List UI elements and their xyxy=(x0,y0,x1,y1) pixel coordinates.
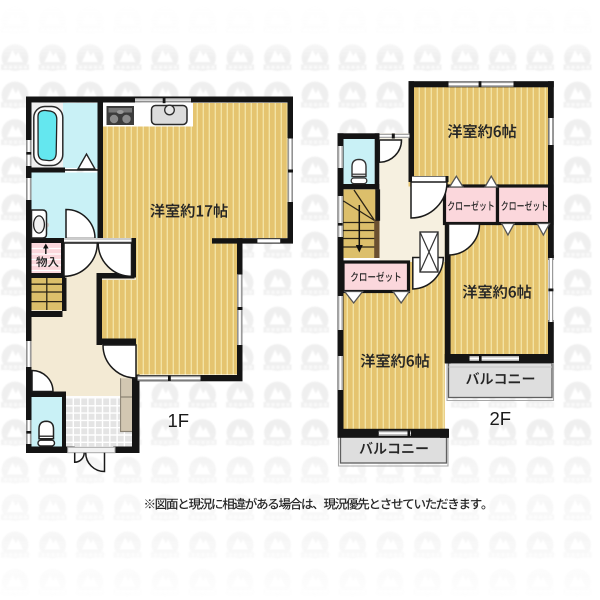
svg-text:2F: 2F xyxy=(490,408,512,429)
svg-text:1F: 1F xyxy=(168,410,190,431)
